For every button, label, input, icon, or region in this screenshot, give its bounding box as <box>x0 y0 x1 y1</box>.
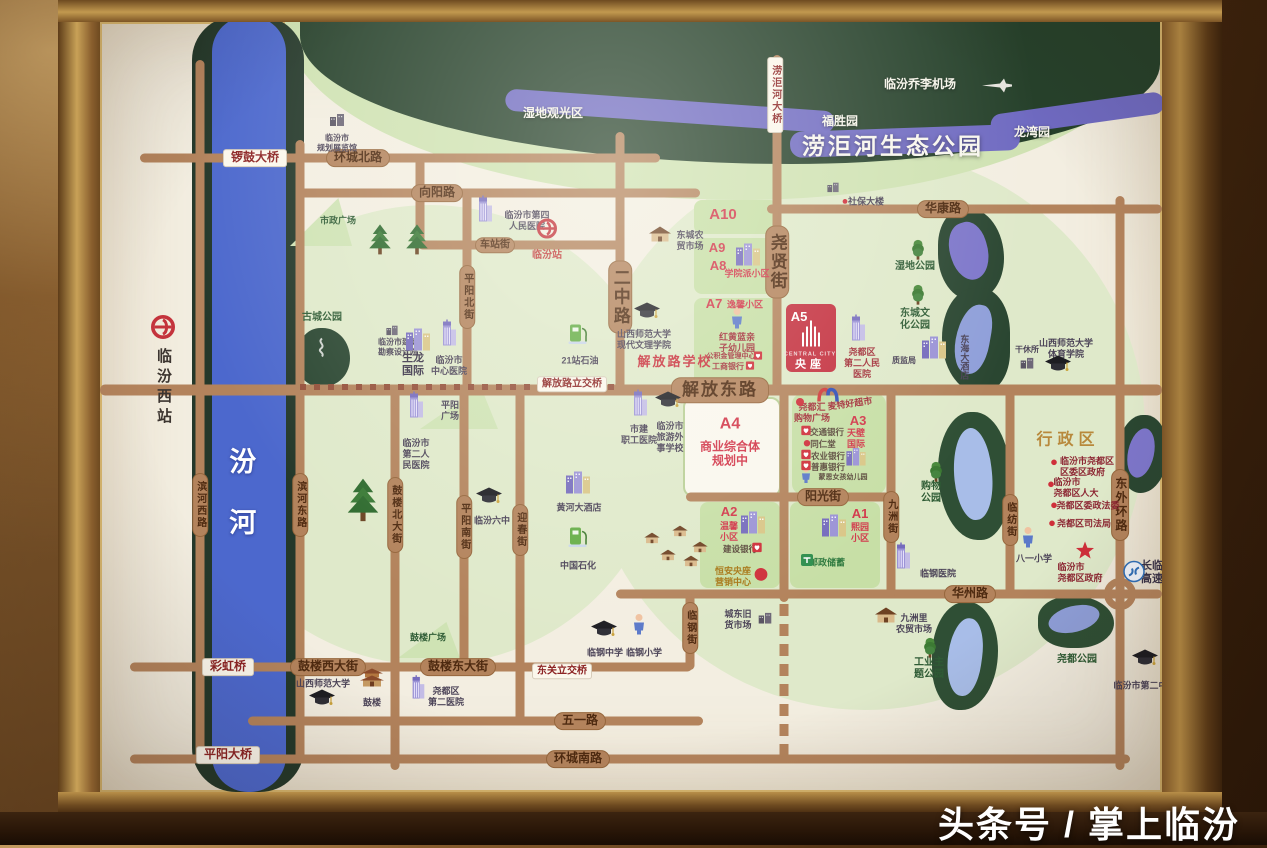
map-photo-scene: 环城北路向阳路华康路车站街解放东路阳光街华州路鼓楼西大街鼓楼东大街五一路环城南路… <box>0 0 1267 845</box>
frame-right-edge <box>1162 0 1222 812</box>
bridge-label: 平阳大桥 <box>196 746 260 764</box>
road-label: 环城北路 <box>326 149 390 167</box>
road-label: 尧贤街 <box>765 226 789 299</box>
gulou-north-street <box>391 390 400 770</box>
huancheng-south-road <box>130 755 1130 764</box>
binhe-west-road <box>196 60 205 762</box>
yangguang-street <box>686 493 896 502</box>
huancheng-north-road <box>140 154 660 163</box>
bridge-label: 锣鼓大桥 <box>223 149 287 167</box>
watermark-text: 头条号 / 掌上临汾 <box>938 796 1240 848</box>
road-label: 阳光街 <box>797 488 849 506</box>
road-label: 向阳路 <box>411 184 463 202</box>
mid-street-planned <box>780 604 789 764</box>
chezhan-street <box>418 241 623 250</box>
jiefang-east-road <box>100 385 1162 396</box>
road-label: 华康路 <box>917 200 969 218</box>
bridge-label: 彩虹桥 <box>202 658 254 676</box>
yingchun-street <box>516 390 525 725</box>
gucheng-park-blob <box>298 328 350 386</box>
xiangyang-road <box>300 189 700 198</box>
a4-box <box>683 397 781 497</box>
bridge-label: 涝洰河大桥 <box>767 57 783 133</box>
plot-a10 <box>694 200 778 234</box>
road-label: 九洲街 <box>883 491 899 543</box>
road-label: 滨河西路 <box>192 473 208 537</box>
mid-street <box>780 390 789 602</box>
linfang-street <box>1006 390 1015 594</box>
plot-a1 <box>790 502 880 588</box>
road-label: 鼓楼北大街 <box>387 477 403 553</box>
road-label: 临纺街 <box>1002 494 1018 546</box>
road-label: 迎春街 <box>512 504 528 556</box>
road-label: 鼓楼东大街 <box>420 658 496 676</box>
plot-a2 <box>700 502 780 588</box>
road-label: 东外环路 <box>1111 469 1129 541</box>
a5-block <box>786 304 836 372</box>
wuyi-road <box>248 717 703 726</box>
bridge-label: 东关立交桥 <box>532 663 592 679</box>
plot-banks <box>792 394 886 494</box>
road-label: 鼓楼西大街 <box>290 658 366 676</box>
bridge-label: 解放路立交桥 <box>537 376 607 392</box>
road-label: 滨河东路 <box>292 473 308 537</box>
road-label: 五一路 <box>554 712 606 730</box>
road-label: 解放东路 <box>671 377 769 403</box>
road-label: 平阳北街 <box>459 265 475 329</box>
road-label: 环城南路 <box>546 750 610 768</box>
road-label: 平阳南街 <box>456 495 472 559</box>
plot-a7 <box>694 298 780 386</box>
road-label: 华州路 <box>944 585 996 603</box>
frame-top-edge <box>58 0 1222 22</box>
road-label: 车站街 <box>475 237 515 253</box>
road-label: 临钢街 <box>682 602 698 654</box>
frame-left-edge <box>58 0 100 812</box>
station-connector <box>416 156 425 248</box>
road-label: 二中路 <box>608 261 632 334</box>
